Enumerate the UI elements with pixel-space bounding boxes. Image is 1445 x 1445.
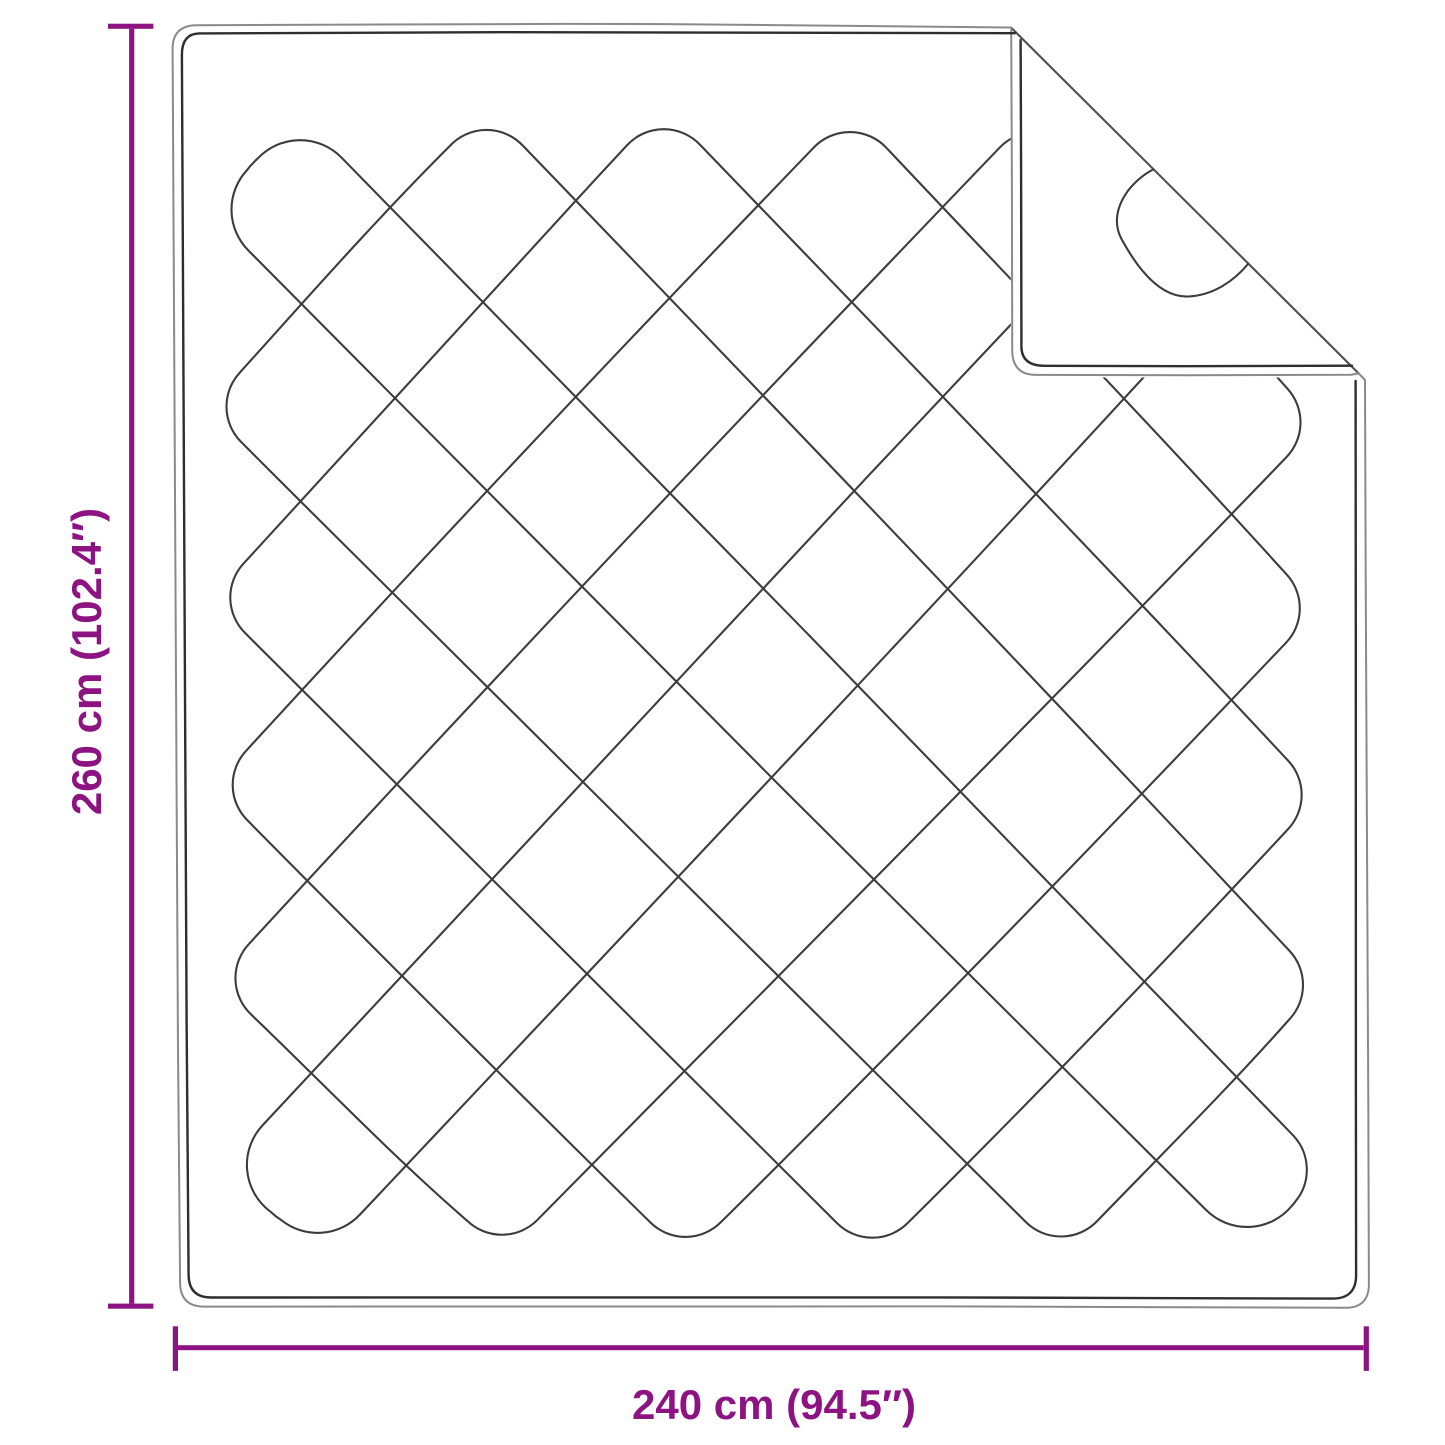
svg-text:240 cm (94.5″): 240 cm (94.5″) [632, 1381, 916, 1428]
svg-text:260 cm (102.4″): 260 cm (102.4″) [63, 508, 110, 815]
